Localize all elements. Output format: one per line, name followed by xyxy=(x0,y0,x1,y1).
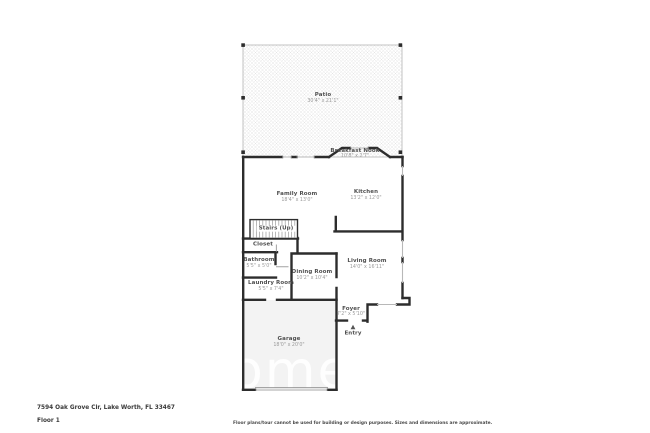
room-dims: 18'4" x 13'0" xyxy=(277,197,318,203)
room-name: Dining Room xyxy=(292,269,333,276)
room-label-garage: Garage 18'0" x 20'0" xyxy=(273,336,304,348)
room-dims: 7'2" x 5'10" xyxy=(337,312,365,318)
room-label-family-room: Family Room 18'4" x 13'0" xyxy=(277,191,318,203)
room-name: Breakfast Nook xyxy=(330,147,379,154)
room-name: Bathroom xyxy=(243,257,274,264)
room-name: Family Room xyxy=(277,191,318,198)
room-label-stairs: Stairs (Up) xyxy=(257,225,296,232)
room-dims: 13'2" x 12'0" xyxy=(350,195,381,201)
room-label-entry: Entry xyxy=(344,331,361,338)
room-label-breakfast-nook: Breakfast Nook 10'8" x 2'7" xyxy=(330,147,379,159)
room-dims: 30'4" x 21'1" xyxy=(307,98,338,104)
room-dims: 14'0" x 16'11" xyxy=(347,264,386,270)
watermark-text: omes xyxy=(231,341,381,401)
room-label-living-room: Living Room 14'0" x 16'11" xyxy=(347,258,386,270)
room-name: Laundry Room xyxy=(248,280,294,287)
room-label-patio: Patio 30'4" x 21'1" xyxy=(307,92,338,104)
room-dims: 5'5" x 7'4" xyxy=(248,286,294,292)
room-label-foyer: Foyer 7'2" x 5'10" xyxy=(337,305,365,317)
wall-kitchen-divider xyxy=(335,217,402,231)
floorplan: omes xyxy=(0,0,650,433)
entry-arrow-icon xyxy=(351,325,356,329)
room-dims: 10'8" x 2'7" xyxy=(330,154,379,160)
room-name: Patio xyxy=(307,92,338,99)
room-name: Foyer xyxy=(337,305,365,312)
disclaimer-text: Floor plans/tour cannot be used for buil… xyxy=(233,421,492,426)
room-label-laundry-room: Laundry Room 5'5" x 7'4" xyxy=(248,280,294,292)
room-dims: 18'0" x 20'0" xyxy=(273,342,304,348)
room-label-bathroom: Bathroom 5'5" x 5'0" xyxy=(243,257,274,269)
room-dims: 10'2" x 10'4" xyxy=(292,275,333,281)
room-name: Closet xyxy=(253,242,273,249)
address-text: 7594 Oak Grove Cir, Lake Worth, FL 33467 xyxy=(37,405,175,411)
room-label-dining-room: Dining Room 10'2" x 10'4" xyxy=(292,269,333,281)
room-label-kitchen: Kitchen 13'2" x 12'0" xyxy=(350,189,381,201)
room-name: Living Room xyxy=(347,258,386,265)
room-name: Stairs (Up) xyxy=(259,225,294,232)
room-name: Entry xyxy=(344,331,361,338)
room-dims: 5'5" x 5'0" xyxy=(243,263,274,269)
room-name: Kitchen xyxy=(350,189,381,196)
floor-label: Floor 1 xyxy=(37,418,60,424)
floorplan-svg: omes xyxy=(0,0,650,433)
room-label-closet: Closet xyxy=(253,242,273,249)
page: omes xyxy=(0,0,650,433)
room-name: Garage xyxy=(273,336,304,343)
